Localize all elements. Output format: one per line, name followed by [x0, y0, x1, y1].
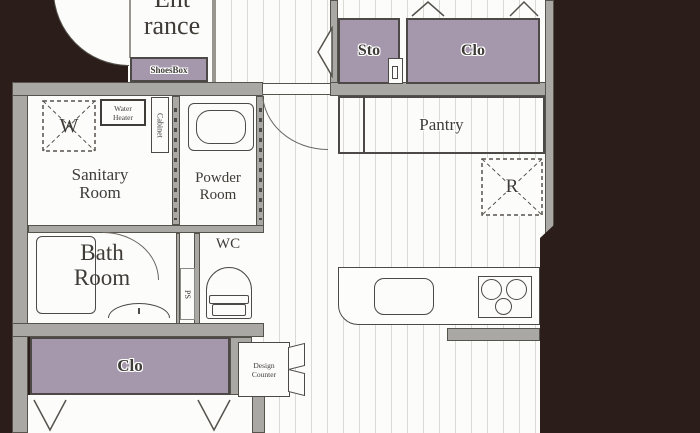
wall-bottom-thick [12, 323, 264, 337]
water-heater-label: Water Heater [113, 104, 133, 122]
bath-label: Bath Room [34, 240, 170, 290]
counter-door-flap-bottom [288, 369, 305, 396]
cabinet-box: Cabinet [151, 97, 169, 153]
clo-upper-label: Clo [461, 42, 485, 60]
design-counter: Design Counter [238, 342, 290, 397]
room-pantry: Pantry [338, 96, 545, 154]
closet-upper: Clo [406, 18, 540, 84]
refrigerator-label: R [506, 176, 519, 198]
bath-counter-tick [138, 308, 140, 314]
sanitary-label: Sanitary Room [30, 166, 170, 202]
shoes-box: ShoesBox [130, 57, 208, 82]
sliding-door-track-left [174, 108, 177, 220]
wall-top-band-right [330, 82, 554, 96]
pantry-label: Pantry [419, 115, 463, 135]
pantry-divider [363, 98, 365, 152]
shoes-box-label: ShoesBox [150, 65, 187, 75]
toilet-tank-upper [209, 295, 249, 304]
washer-space: W [42, 100, 96, 152]
bezel-diagonal-notch [540, 225, 554, 238]
wc-label: WC [200, 236, 256, 253]
wall-right-outer [545, 0, 554, 240]
ps-label: PS [183, 290, 192, 299]
powder-sink-basin [196, 110, 246, 144]
toilet-tank-lower [212, 304, 246, 316]
bezel-right [554, 0, 700, 433]
folding-door-marks-top [338, 0, 544, 17]
entrance-label: Ent rance [132, 0, 212, 39]
water-heater-box: Water Heater [100, 99, 146, 126]
sliding-door-track-right [259, 108, 262, 220]
design-counter-label: Design Counter [252, 361, 276, 379]
clo-lower-label: Clo [117, 356, 143, 376]
refrigerator-space: R [481, 158, 543, 216]
stove-burner-left [481, 279, 502, 300]
wall-mid-horizontal [28, 225, 264, 233]
washer-label: W [60, 115, 79, 138]
bezel-right-inset [540, 238, 554, 433]
bezel-left [0, 0, 12, 433]
pipe-shaft: PS [180, 268, 195, 320]
floor-plan: Sto Clo ShoesBox Ent rance Pantry R [0, 0, 700, 433]
wall-top-band-left [12, 82, 263, 96]
wall-entrance-right [212, 0, 216, 82]
sto-label: Sto [358, 42, 380, 60]
wall-kitchen-stub [447, 328, 540, 341]
counter-door-flap-top [288, 343, 305, 370]
hall-door-icon [316, 26, 334, 78]
cabinet-label: Cabinet [156, 113, 165, 138]
wall-left-outer [12, 82, 28, 433]
powder-label: Powder Room [178, 170, 258, 204]
stove-burner-right [506, 279, 527, 300]
folding-door-marks-bottom [28, 396, 254, 433]
sto-niche-fitting [392, 66, 398, 79]
closet-lower: Clo [30, 337, 230, 395]
kitchen-sink [374, 278, 434, 315]
stove-burner-center [495, 298, 512, 315]
